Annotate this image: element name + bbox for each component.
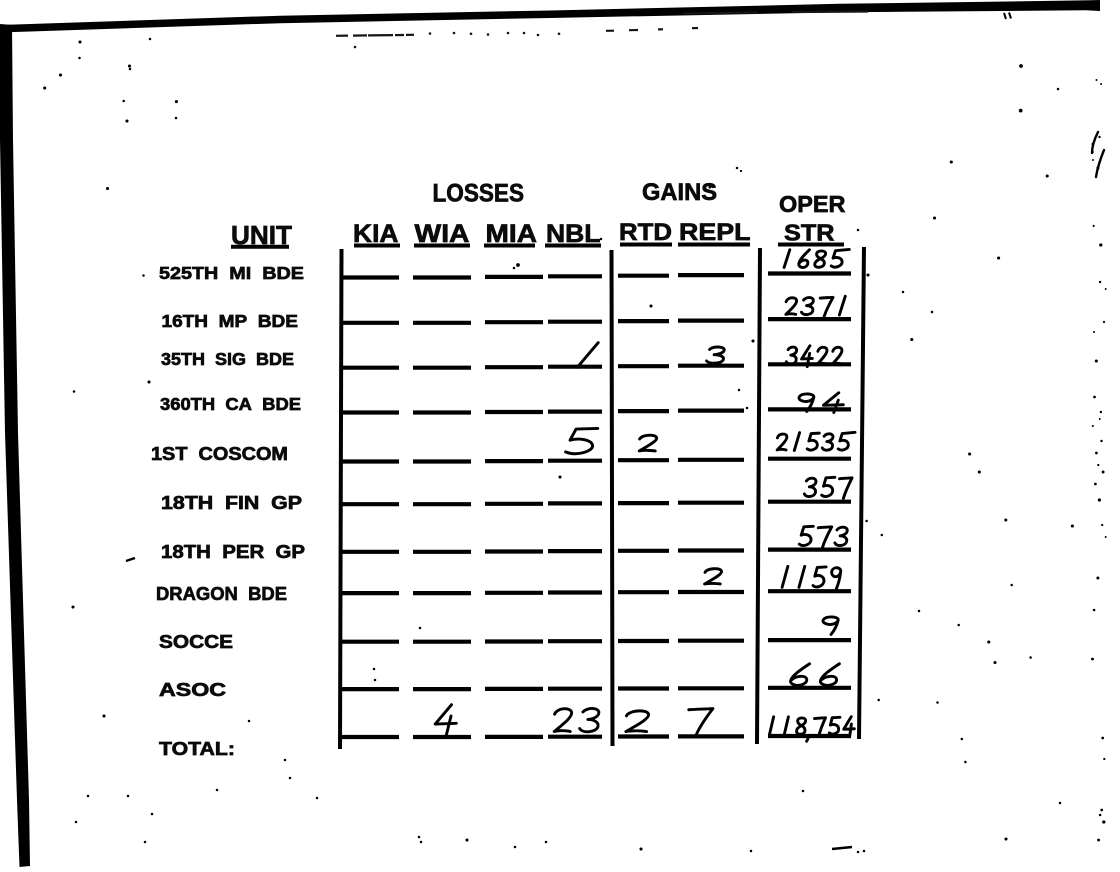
svg-text:360TH CA BDE: 360TH CA BDE [160, 394, 301, 414]
svg-text:18TH PER GP: 18TH PER GP [161, 542, 305, 562]
svg-text:GAINS: GAINS [642, 179, 717, 206]
svg-text:35TH SIG BDE: 35TH SIG BDE [161, 349, 294, 369]
svg-text:525TH MI BDE: 525TH MI BDE [159, 263, 304, 283]
svg-text:STR: STR [784, 220, 835, 246]
svg-text:RTD: RTD [619, 219, 672, 246]
svg-text:SOCCE: SOCCE [159, 632, 233, 652]
svg-text:18TH FIN GP: 18TH FIN GP [161, 493, 302, 513]
svg-text:ASOC: ASOC [159, 680, 226, 700]
svg-text:TOTAL:: TOTAL: [159, 738, 235, 759]
svg-text:REPL: REPL [679, 219, 751, 246]
svg-text:OPER: OPER [779, 191, 846, 217]
svg-text:16TH MP BDE: 16TH MP BDE [162, 311, 299, 331]
svg-text:LOSSES: LOSSES [433, 180, 525, 208]
svg-text:1ST COSCOM: 1ST COSCOM [151, 444, 288, 464]
svg-text:DRAGON BDE: DRAGON BDE [156, 584, 287, 604]
